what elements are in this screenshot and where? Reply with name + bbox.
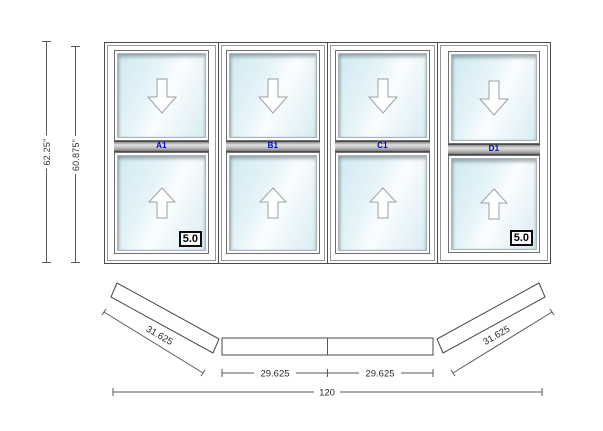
unit-label: D1	[448, 145, 540, 153]
lower-glass	[229, 155, 317, 251]
lower-glass: 5.0	[451, 158, 537, 250]
lower-sash: 5.0	[448, 155, 540, 253]
rating-badge: 5.0	[179, 231, 202, 247]
meeting-rail: D1	[448, 144, 540, 155]
dimension-tick	[71, 262, 80, 263]
up-arrow-icon	[148, 187, 176, 219]
overall-height-dimension: 62.25"	[42, 41, 51, 263]
upper-sash	[114, 50, 209, 141]
upper-glass	[117, 53, 206, 138]
down-arrow-icon	[147, 78, 177, 114]
upper-glass	[338, 53, 427, 138]
right-projection-label: 31.625	[481, 324, 512, 348]
center-left-width-label: 29.625	[260, 369, 289, 380]
plan-right-flanker-panel	[437, 283, 545, 353]
lower-sash: 5.0	[114, 152, 209, 254]
window-unit-a1[interactable]: A1 5.0	[104, 42, 219, 264]
dimension-tick	[201, 370, 205, 376]
plan-left-flanker-panel	[111, 283, 219, 353]
left-projection-label: 31.625	[144, 324, 175, 348]
up-arrow-icon	[259, 187, 287, 219]
dimension-tick	[102, 309, 106, 315]
frame-height-dimension: 60.875"	[71, 46, 80, 263]
center-right-width-label: 29.625	[365, 369, 394, 380]
dimension-line	[453, 312, 552, 373]
up-arrow-icon	[369, 187, 397, 219]
unit-frame: C1	[330, 45, 435, 261]
dimension-tick	[42, 262, 51, 263]
meeting-rail: C1	[335, 141, 430, 152]
down-arrow-icon	[479, 80, 509, 116]
unit-frame: B1	[221, 45, 325, 261]
dimension-tick	[451, 370, 455, 376]
lower-glass	[338, 155, 427, 251]
window-unit-b1[interactable]: B1	[218, 42, 328, 264]
lower-sash	[226, 152, 320, 254]
meeting-rail: B1	[226, 141, 320, 152]
window-unit-d1[interactable]: D1 5.0	[437, 42, 551, 264]
window-shop-drawing: 62.25" 60.875" A1 5.0	[0, 0, 603, 431]
down-arrow-icon	[258, 78, 288, 114]
upper-sash	[226, 50, 320, 141]
overall-width-label: 120	[319, 388, 335, 399]
down-arrow-icon	[368, 78, 398, 114]
upper-sash	[448, 51, 540, 144]
lower-sash	[335, 152, 430, 254]
unit-label: A1	[114, 142, 209, 150]
rating-badge: 5.0	[510, 230, 533, 246]
unit-frame: D1 5.0	[440, 45, 548, 261]
unit-label: B1	[226, 142, 320, 150]
dimension-line	[104, 312, 203, 373]
dimension-tick	[550, 309, 554, 315]
unit-frame: A1 5.0	[107, 45, 216, 261]
upper-glass	[229, 53, 317, 138]
up-arrow-icon	[480, 188, 508, 220]
lower-glass: 5.0	[117, 155, 206, 251]
unit-label: C1	[335, 142, 430, 150]
window-unit-c1[interactable]: C1	[327, 42, 438, 264]
upper-glass	[451, 54, 537, 141]
frame-height-label: 60.875"	[70, 135, 82, 173]
upper-sash	[335, 50, 430, 141]
plan-center-panels	[222, 338, 433, 355]
meeting-rail: A1	[114, 141, 209, 152]
overall-height-label: 62.25"	[41, 136, 53, 169]
